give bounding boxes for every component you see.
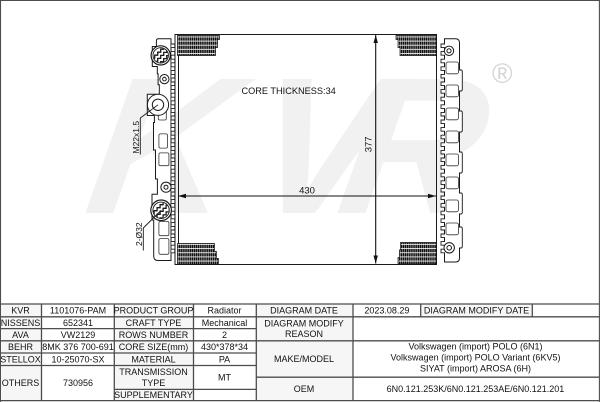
svg-text:430: 430 bbox=[299, 186, 315, 197]
svg-text:CRAFT TYPE: CRAFT TYPE bbox=[126, 318, 182, 328]
svg-text:6N0.121.253K/6N0.121.253AE/6N0: 6N0.121.253K/6N0.121.253AE/6N0.121.201 bbox=[387, 384, 565, 394]
svg-text:DIAGRAM DATE: DIAGRAM DATE bbox=[270, 306, 338, 316]
svg-text:OTHERS: OTHERS bbox=[2, 378, 40, 388]
svg-text:TRANSMISSION: TRANSMISSION bbox=[119, 367, 188, 377]
svg-text:MT: MT bbox=[218, 373, 231, 383]
svg-text:M22x1.5: M22x1.5 bbox=[131, 121, 141, 154]
svg-text:377: 377 bbox=[363, 136, 374, 152]
svg-text:PRODUCT GROUP: PRODUCT GROUP bbox=[114, 306, 194, 316]
svg-text:STELLOX: STELLOX bbox=[0, 355, 41, 365]
svg-text:OEM: OEM bbox=[294, 384, 315, 394]
svg-text:KVR: KVR bbox=[11, 306, 30, 316]
svg-text:BEHR: BEHR bbox=[8, 342, 34, 352]
svg-text:CORE THICKNESS:34: CORE THICKNESS:34 bbox=[242, 86, 336, 96]
svg-text:®: ® bbox=[492, 58, 513, 89]
svg-text:NISSENS: NISSENS bbox=[1, 318, 41, 328]
svg-text:SUPPLEMENTARY: SUPPLEMENTARY bbox=[114, 390, 193, 400]
svg-text:652341: 652341 bbox=[63, 318, 93, 328]
svg-text:Volkswagen (import) POLO (6N1): Volkswagen (import) POLO (6N1) bbox=[408, 342, 542, 352]
svg-text:REASON: REASON bbox=[285, 329, 323, 339]
svg-text:DIAGRAM MODIFY: DIAGRAM MODIFY bbox=[264, 319, 344, 329]
svg-text:730956: 730956 bbox=[63, 378, 93, 388]
svg-text:1101076-PAM: 1101076-PAM bbox=[50, 306, 106, 316]
svg-text:AVA: AVA bbox=[12, 330, 29, 340]
svg-text:10-25070-SX: 10-25070-SX bbox=[51, 355, 104, 365]
svg-text:VW2129: VW2129 bbox=[61, 330, 96, 340]
svg-text:TYPE: TYPE bbox=[142, 378, 166, 388]
svg-text:8MK 376 700-691: 8MK 376 700-691 bbox=[42, 342, 114, 352]
svg-text:2023.08.29: 2023.08.29 bbox=[364, 306, 409, 316]
svg-text:PA: PA bbox=[219, 355, 230, 365]
svg-text:2: 2 bbox=[222, 330, 227, 340]
svg-text:Mechanical: Mechanical bbox=[202, 318, 248, 328]
svg-text:Radiator: Radiator bbox=[207, 306, 241, 316]
svg-text:ROWS NUMBER: ROWS NUMBER bbox=[119, 330, 189, 340]
svg-text:MATERIAL: MATERIAL bbox=[131, 355, 175, 365]
svg-text:MAKE/MODEL: MAKE/MODEL bbox=[274, 354, 334, 364]
svg-text:DIAGRAM MODIFY DATE: DIAGRAM MODIFY DATE bbox=[424, 306, 529, 316]
svg-text:CORE SIZE(mm): CORE SIZE(mm) bbox=[119, 342, 189, 352]
svg-text:2-Ø32: 2-Ø32 bbox=[134, 222, 144, 246]
svg-text:SIYAT (import) AROSA (6H): SIYAT (import) AROSA (6H) bbox=[420, 364, 531, 374]
svg-text:Volkswagen (import) POLO Varia: Volkswagen (import) POLO Variant (6KV5) bbox=[391, 353, 561, 363]
svg-text:430*378*34: 430*378*34 bbox=[201, 342, 248, 352]
